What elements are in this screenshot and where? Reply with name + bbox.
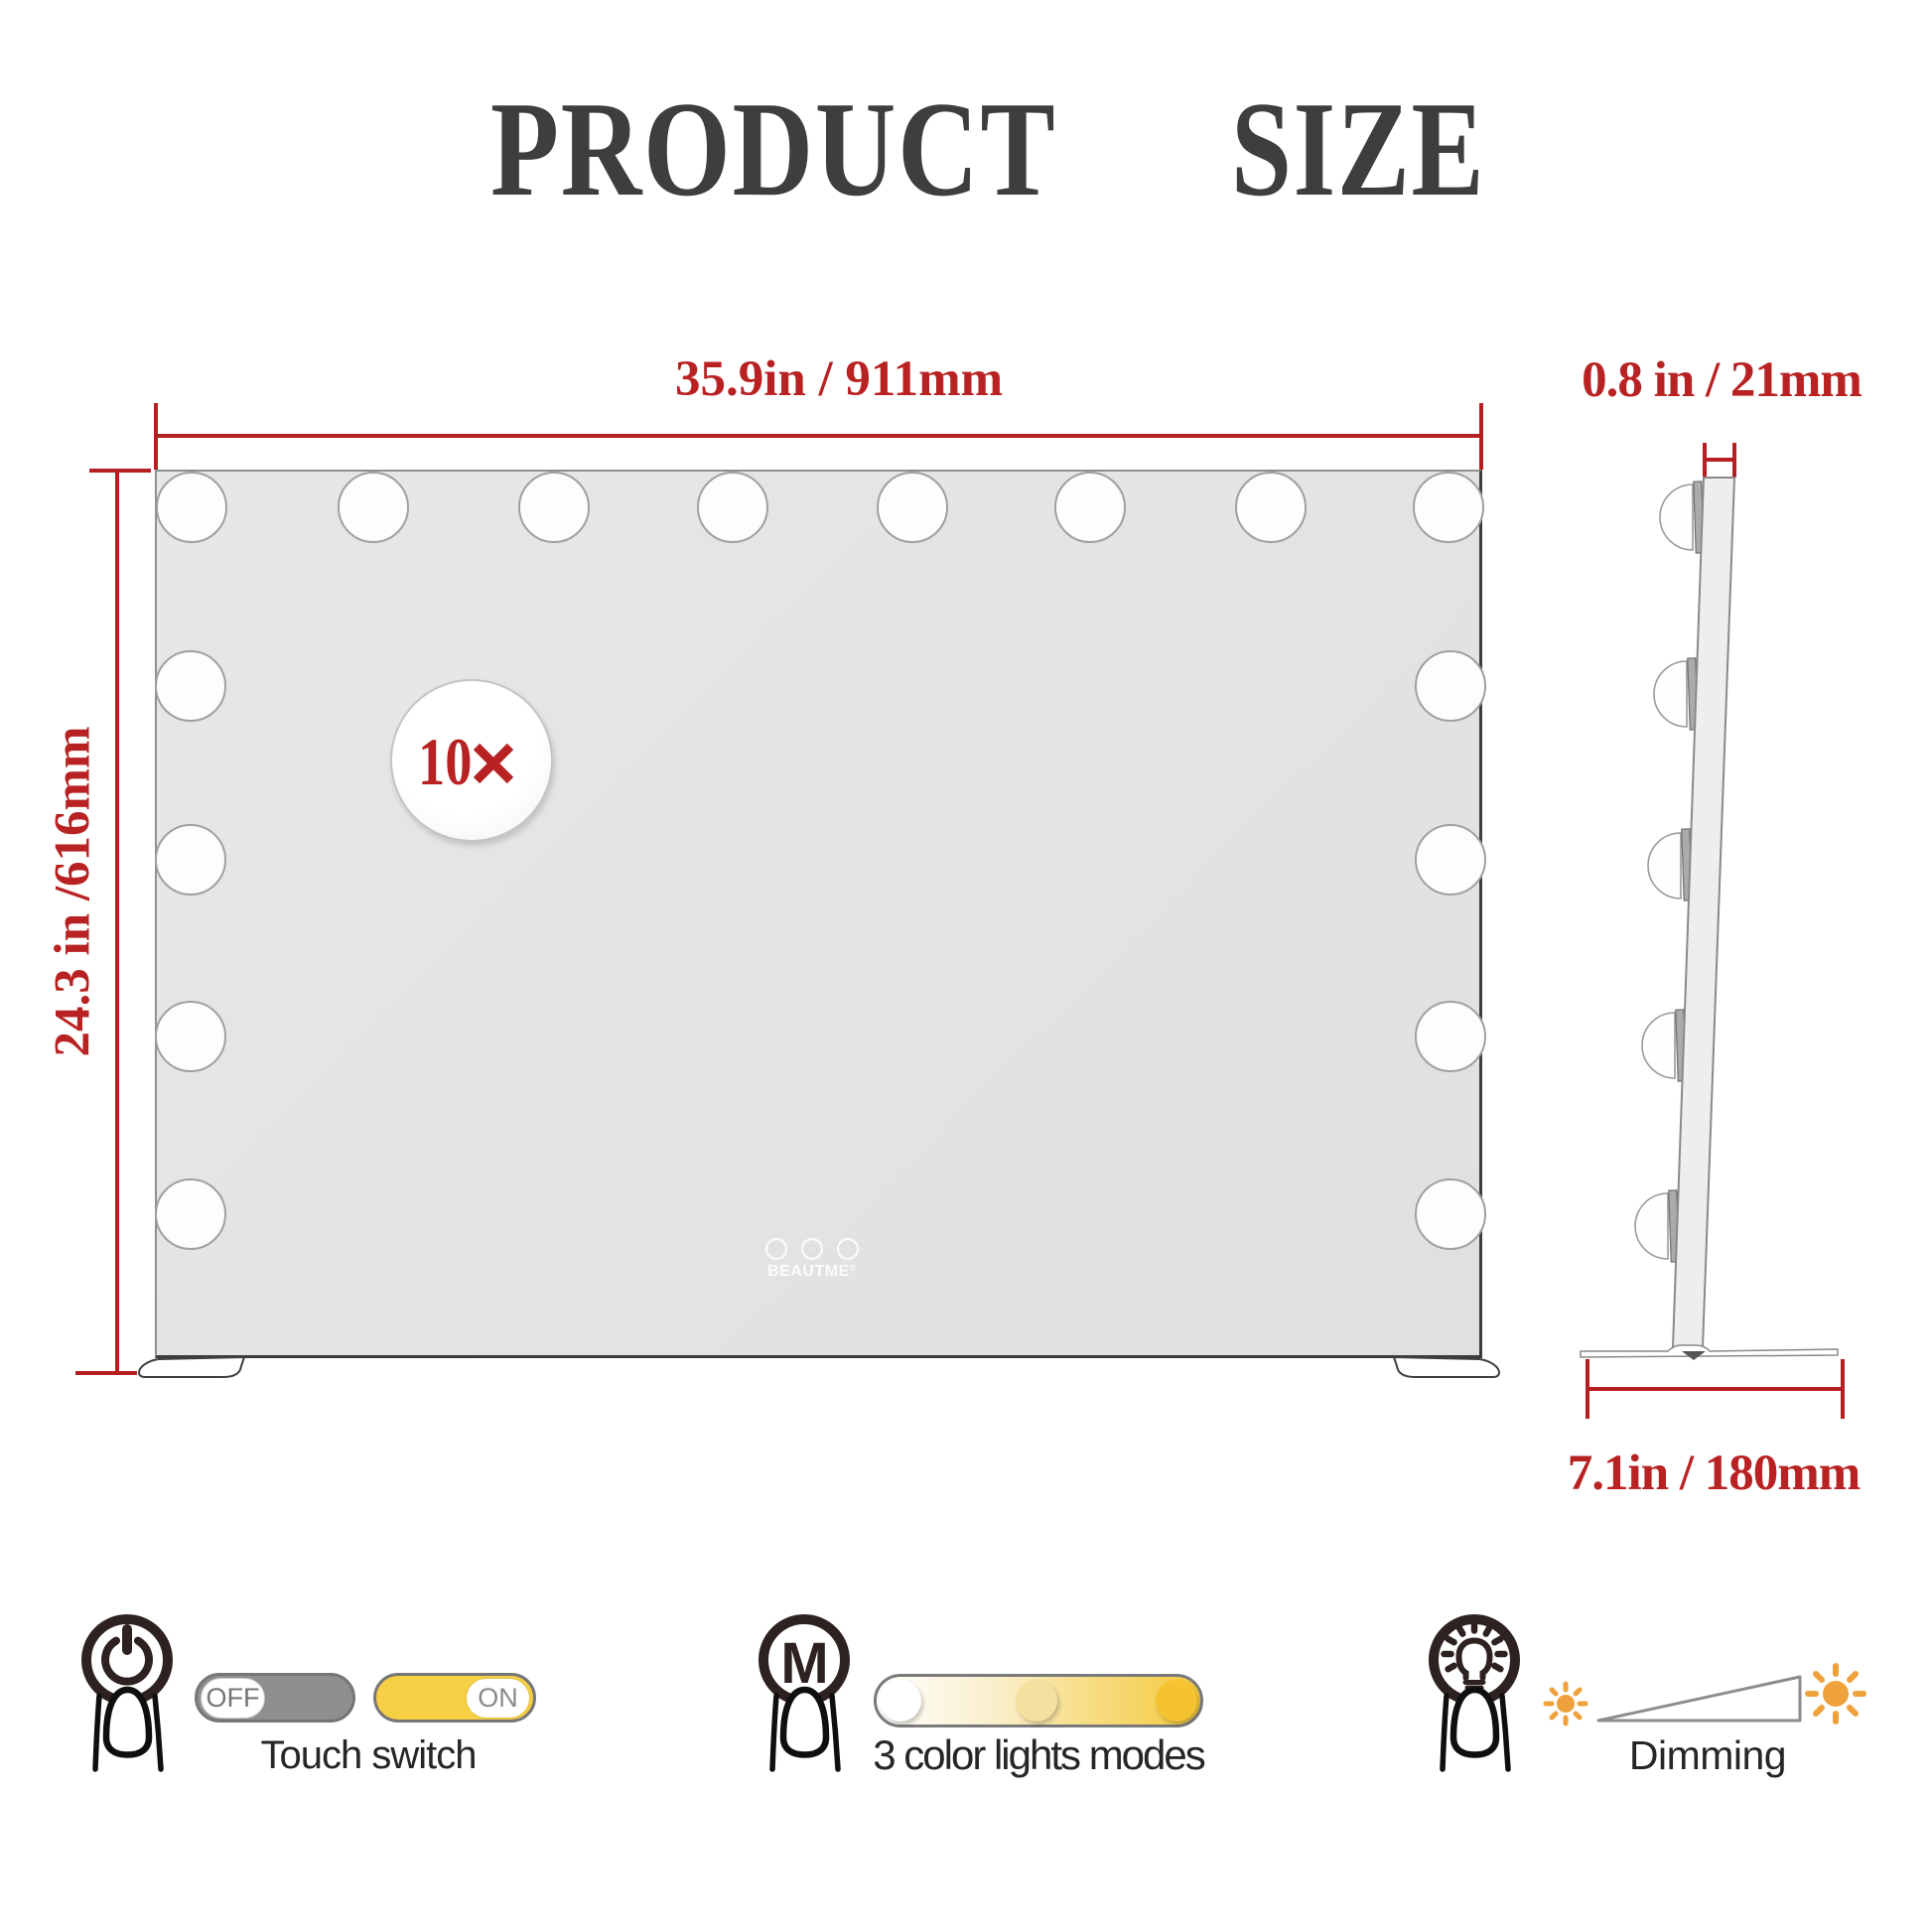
svg-text:M: M bbox=[780, 1631, 828, 1696]
